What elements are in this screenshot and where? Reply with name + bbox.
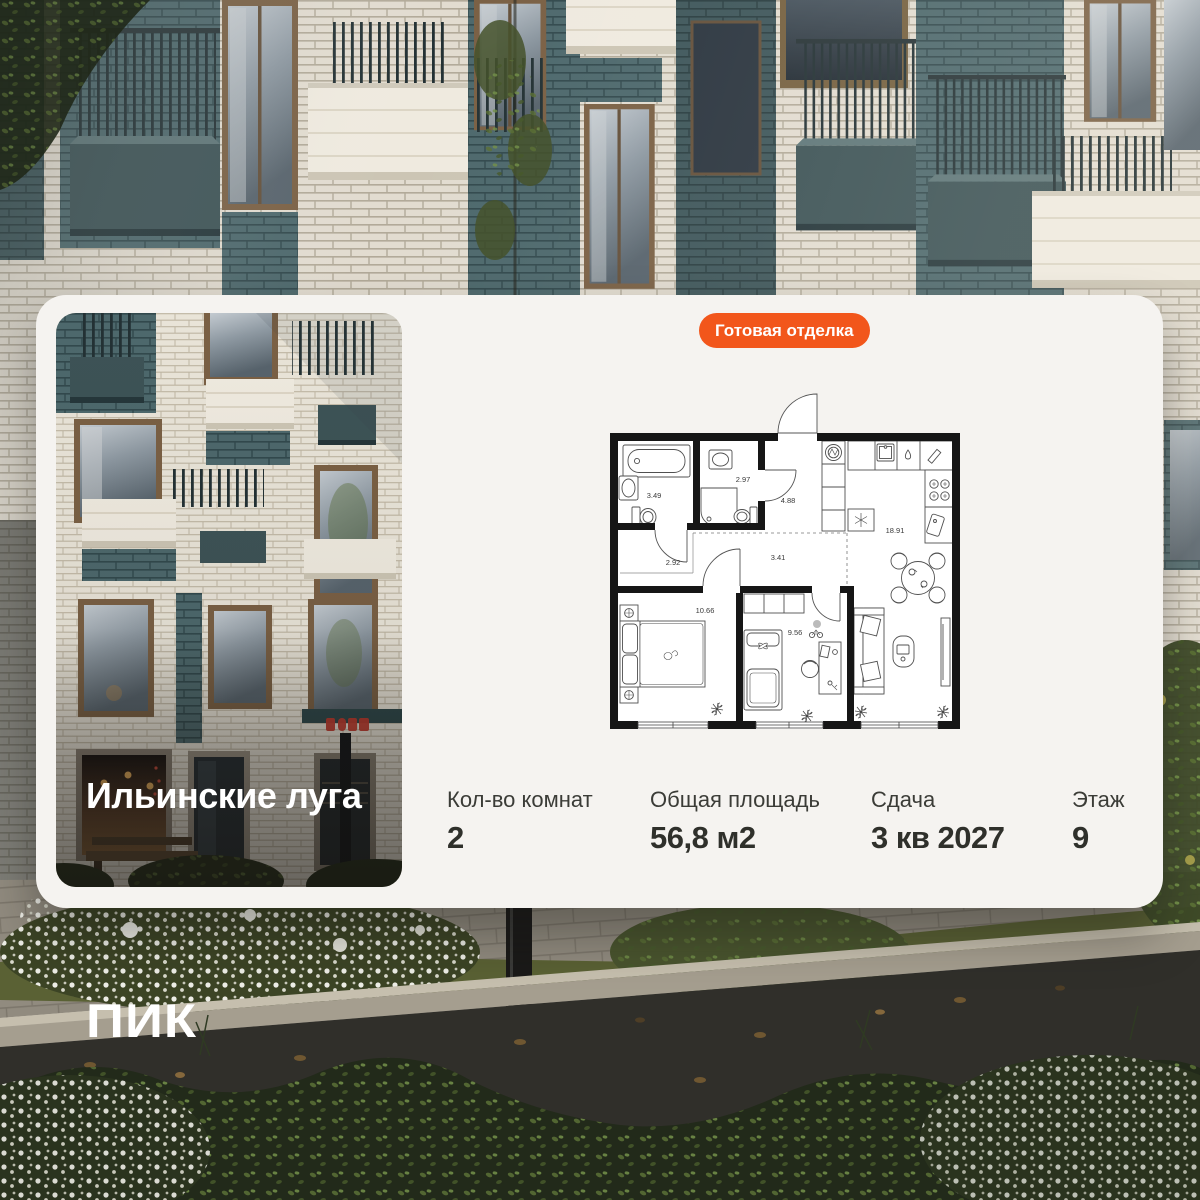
spec-floor-value: 9 [1072,820,1125,856]
listing-card[interactable]: Ильинские луга Готовая отделка [36,295,1163,908]
spec-rooms-value: 2 [447,820,593,856]
screenshot-root: Ильинские луга Готовая отделка [0,0,1200,1200]
spec-delivery: Сдача 3 кв 2027 [871,787,1005,856]
pik-logo: ПИК [86,993,197,1048]
spec-rooms-label: Кол-во комнат [447,787,593,813]
spec-rooms: Кол-во комнат 2 [447,787,593,856]
spec-floor: Этаж 9 [1072,787,1125,856]
spec-delivery-label: Сдача [871,787,1005,813]
spec-floor-label: Этаж [1072,787,1125,813]
specs-row: Кол-во комнат 2 Общая площадь 56,8 м2 Сд… [36,295,1163,908]
spec-area: Общая площадь 56,8 м2 [650,787,820,856]
spec-area-label: Общая площадь [650,787,820,813]
spec-area-value: 56,8 м2 [650,820,820,856]
spec-delivery-value: 3 кв 2027 [871,820,1005,856]
